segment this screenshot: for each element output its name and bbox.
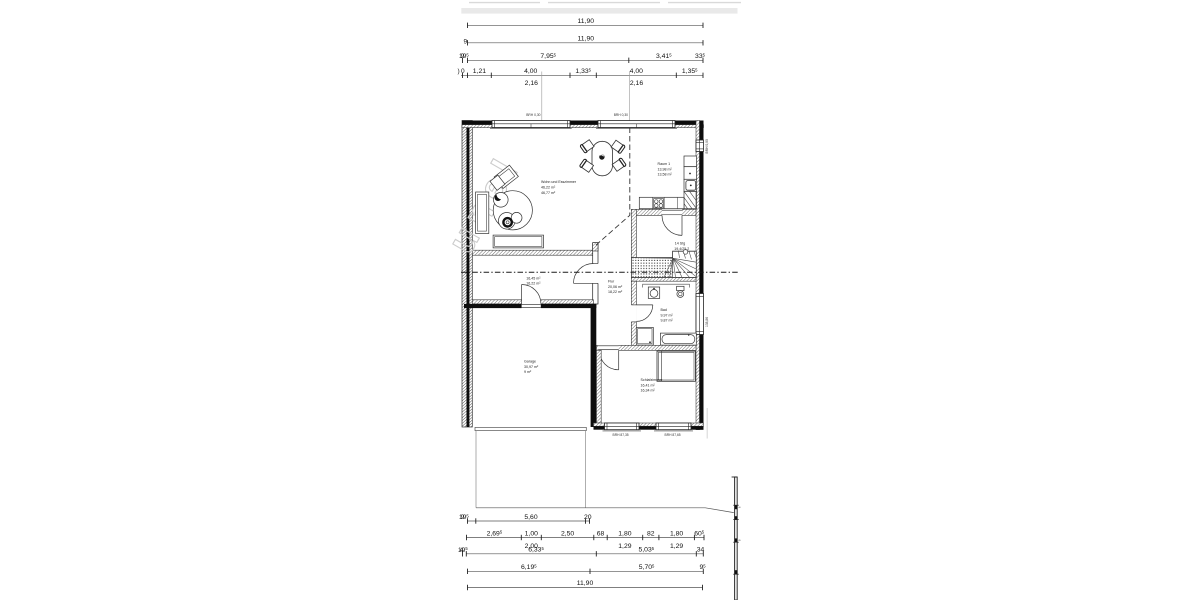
svg-text:9 m²: 9 m²: [524, 370, 532, 374]
svg-text:34: 34: [697, 547, 705, 554]
svg-text:BRH 0,30: BRH 0,30: [614, 113, 628, 117]
svg-text:Raum 1: Raum 1: [658, 162, 671, 166]
svg-text:5,60: 5,60: [524, 514, 537, 521]
svg-text:Flur: Flur: [608, 280, 615, 284]
svg-text:BRH 87,35: BRH 87,35: [613, 433, 629, 437]
svg-text:0: 0: [461, 68, 465, 75]
svg-text:13,98 m²: 13,98 m²: [658, 167, 673, 171]
svg-text:1,21: 1,21: [473, 68, 486, 75]
svg-text:16,22 m²: 16,22 m²: [526, 282, 541, 286]
svg-text:13,58 m²: 13,58 m²: [658, 173, 673, 177]
svg-text:9,87 m²: 9,87 m²: [661, 319, 674, 323]
svg-text:46,22 m²: 46,22 m²: [541, 186, 556, 190]
svg-text:4,00: 4,00: [524, 68, 537, 75]
svg-text:68: 68: [597, 530, 605, 537]
svg-text:14 Stg: 14 Stg: [675, 242, 685, 246]
svg-text:): ): [458, 68, 460, 75]
svg-text:18,22 m²: 18,22 m²: [608, 290, 623, 294]
svg-text:Schlafzimmer: Schlafzimmer: [641, 378, 664, 382]
svg-text:11,90: 11,90: [578, 18, 595, 25]
svg-text:2,16: 2,16: [525, 80, 538, 87]
svg-text:1,29: 1,29: [670, 543, 683, 550]
svg-text:11,90: 11,90: [577, 580, 594, 587]
svg-text:4,00: 4,00: [630, 68, 643, 75]
svg-text:BRH 0,30: BRH 0,30: [526, 113, 540, 117]
svg-text:Garage: Garage: [524, 360, 536, 364]
svg-text:9: 9: [464, 39, 468, 46]
svg-text:20: 20: [584, 514, 592, 521]
svg-text:19,4/25,2: 19,4/25,2: [674, 247, 689, 251]
svg-text:82: 82: [647, 530, 655, 537]
svg-text:20,06 m²: 20,06 m²: [608, 285, 623, 289]
svg-text:16,41 m²: 16,41 m²: [641, 383, 656, 387]
svg-text:Wohn und Esszimmer: Wohn und Esszimmer: [541, 180, 577, 184]
svg-text:11,90: 11,90: [578, 36, 595, 43]
svg-text:16,34 m²: 16,34 m²: [641, 389, 656, 393]
svg-text:46,77 m²: 46,77 m²: [541, 191, 556, 195]
svg-text:30,97 m²: 30,97 m²: [524, 365, 539, 369]
svg-text:16,45 m²: 16,45 m²: [526, 276, 541, 280]
svg-text:138,86: 138,86: [705, 317, 709, 327]
svg-text:BRH 87,65: BRH 87,65: [665, 433, 681, 437]
svg-text:2,16: 2,16: [630, 80, 643, 87]
svg-text:2,50: 2,50: [561, 530, 574, 537]
svg-text:1,29: 1,29: [618, 543, 631, 550]
svg-text:Bad: Bad: [661, 308, 667, 312]
svg-text:1,80: 1,80: [670, 530, 683, 537]
svg-text:9,97 m²: 9,97 m²: [661, 313, 674, 317]
svg-text:1,80: 1,80: [618, 530, 631, 537]
svg-text:1,00: 1,00: [525, 530, 538, 537]
svg-text:BRH 0,90: BRH 0,90: [705, 139, 709, 153]
